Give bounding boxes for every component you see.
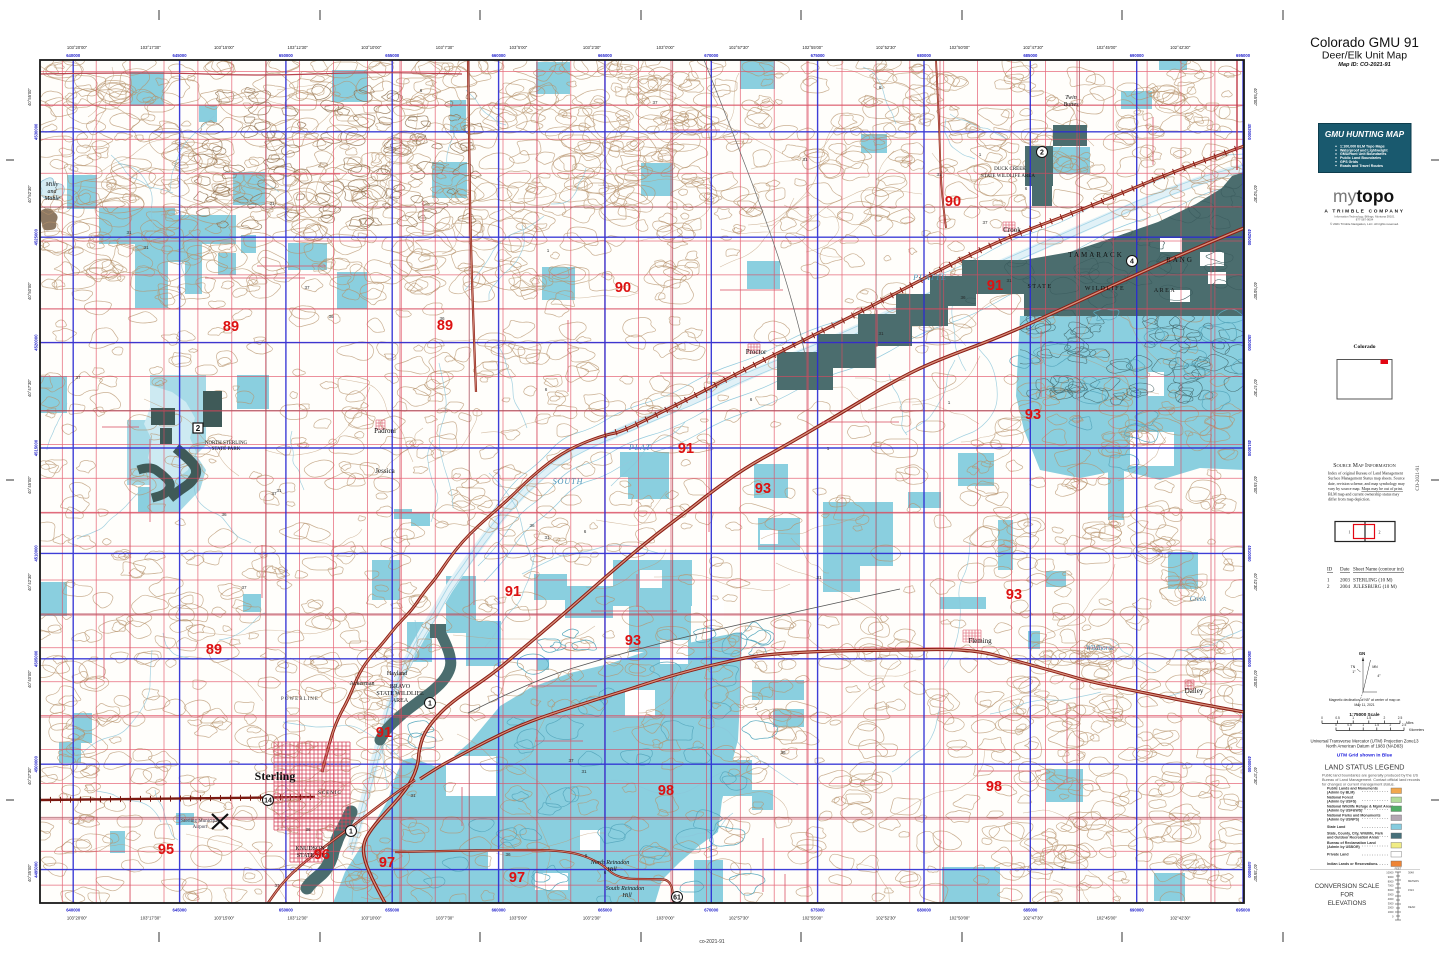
svg-text:CO-2021-91: CO-2021-91 [1416,465,1421,491]
svg-text:Map ID: CO-2021-91: Map ID: CO-2021-91 [1338,62,1391,68]
svg-text:650000: 650000 [279,53,294,58]
svg-text:103°15'00": 103°15'00" [214,916,235,921]
svg-text:2000: 2000 [1388,906,1394,910]
svg-text:102°55'00": 102°55'00" [802,916,823,921]
svg-text:31: 31 [269,201,275,206]
svg-text:103°12'30": 103°12'30" [288,45,309,50]
svg-text:1: 1 [755,706,758,711]
svg-text:SCENIC: SCENIC [318,791,342,796]
svg-text:103°5'00": 103°5'00" [509,45,527,50]
svg-text:4000: 4000 [1388,897,1394,901]
svg-text:4500000: 4500000 [1247,756,1252,773]
svg-text:NORTH STERLING: NORTH STERLING [205,441,248,446]
svg-text:103°20'00": 103°20'00" [67,916,88,921]
svg-text:Colorado GMU 91: Colorado GMU 91 [1310,35,1419,50]
svg-text:680000: 680000 [917,53,932,58]
svg-text:91: 91 [987,278,1003,294]
svg-text:10000: 10000 [1386,871,1394,875]
svg-text:40°45'00": 40°45'00" [1253,476,1258,494]
svg-text:685000: 685000 [1023,53,1038,58]
svg-text:(Admin by USF&WS): (Admin by USF&WS) [1327,809,1363,813]
svg-text:93: 93 [625,633,641,649]
svg-text:37: 37 [241,585,247,590]
svg-text:1: 1 [547,248,550,253]
svg-text:102°45'00": 102°45'00" [1097,45,1118,50]
svg-text:differ from map depiction.: differ from map depiction. [1328,497,1370,502]
svg-text:103°12'30": 103°12'30" [288,916,309,921]
svg-text:102°52'30": 102°52'30" [876,45,897,50]
svg-text:for changes or current managem: for changes or current management status… [1322,782,1395,786]
svg-text:6000: 6000 [1388,888,1394,892]
svg-text:1: 1 [1352,716,1354,720]
svg-text:91: 91 [376,725,392,741]
svg-text:31: 31 [802,157,808,162]
svg-text:Jessica: Jessica [375,467,395,475]
svg-text:660000: 660000 [492,908,507,913]
svg-text:103°17'30": 103°17'30" [140,916,161,921]
svg-text:Fleming: Fleming [968,637,992,645]
svg-text:State Land: State Land [1327,825,1345,829]
svg-text:40°37'30": 40°37'30" [27,767,32,785]
svg-text:Indian Lands or Reservations: Indian Lands or Reservations [1327,862,1377,866]
svg-text:Sterling: Sterling [255,769,296,783]
svg-text:Hill: Hill [621,893,632,899]
svg-text:4510000: 4510000 [34,545,39,562]
svg-text:RANG: RANG [1166,256,1194,264]
svg-text:4525000: 4525000 [34,228,39,245]
svg-text:2: 2 [196,424,201,433]
svg-text:GN: GN [1359,651,1365,656]
svg-text:Roads and Travel Routes: Roads and Travel Routes [1340,164,1383,168]
svg-text:665000: 665000 [598,53,613,58]
svg-text:1: 1 [1349,530,1351,535]
svg-text:102°42'30": 102°42'30" [1170,916,1191,921]
svg-text:36: 36 [305,827,311,832]
svg-text:Magnetic declination of N5° at: Magnetic declination of N5° at center of… [1329,698,1401,702]
svg-text:102°45'00": 102°45'00" [1097,916,1118,921]
svg-text:6: 6 [584,529,587,534]
svg-text:3048: 3048 [1408,871,1414,875]
svg-text:103°7'30": 103°7'30" [436,916,454,921]
svg-text:37: 37 [304,285,310,290]
svg-text:31: 31 [126,230,132,235]
svg-text:3000: 3000 [1388,901,1394,905]
svg-text:93: 93 [1025,407,1041,423]
svg-text:40°40'00": 40°40'00" [1253,670,1258,688]
svg-text:MN: MN [1372,665,1378,669]
svg-text:6: 6 [585,853,588,858]
svg-text:93: 93 [1006,587,1022,603]
svg-text:2: 2 [1040,150,1044,157]
svg-text:31: 31 [816,575,822,580]
svg-text:AREA: AREA [1154,288,1176,294]
svg-text:103°5'00": 103°5'00" [509,916,527,921]
svg-text:103°10'00": 103°10'00" [361,916,382,921]
svg-text:STATE WILDLIFE: STATE WILDLIFE [376,691,424,697]
svg-text:103°0'00": 103°0'00" [656,45,674,50]
svg-text:Ackerman: Ackerman [350,681,375,687]
svg-text:102°42'30": 102°42'30" [1170,45,1191,50]
svg-text:LAND STATUS LEGEND: LAND STATUS LEGEND [1324,763,1404,772]
svg-text:8000: 8000 [1388,879,1394,883]
svg-text:97: 97 [379,855,395,871]
svg-text:4505000: 4505000 [1247,651,1252,668]
svg-text:102°50'00": 102°50'00" [949,916,970,921]
svg-text:READ: READ [1408,905,1415,909]
svg-text:0.5: 0.5 [1347,723,1352,727]
svg-text:4505000: 4505000 [34,650,39,667]
svg-text:640000: 640000 [66,908,81,913]
svg-text:31: 31 [878,331,884,336]
svg-text:Twin: Twin [1065,95,1077,101]
svg-text:40°37'30": 40°37'30" [1253,767,1258,785]
svg-text:4520000: 4520000 [34,334,39,351]
svg-text:670000: 670000 [704,908,719,913]
svg-text:650000: 650000 [279,908,294,913]
svg-text:Sterling Municipal: Sterling Municipal [181,819,219,824]
svg-text:102°52'30": 102°52'30" [876,916,897,921]
svg-text:640000: 640000 [66,53,81,58]
svg-text:Public land boundaries are gen: Public land boundaries are generally pro… [1322,774,1419,778]
svg-text:1000: 1000 [1388,910,1394,914]
svg-text:36: 36 [529,523,535,528]
svg-text:SOUTH: SOUTH [553,477,584,486]
svg-text:4530000: 4530000 [1247,124,1252,141]
svg-text:103°20'00": 103°20'00" [67,45,88,50]
svg-text:South Reinadon: South Reinadon [606,886,644,892]
svg-text:1.5: 1.5 [1367,716,1372,720]
svg-text:31: 31 [544,535,550,540]
svg-text:2: 2 [1379,530,1381,535]
svg-text:4500000: 4500000 [34,755,39,772]
svg-text:PLAT: PLAT [628,443,651,452]
svg-text:North American Datum of 1983 (: North American Datum of 1983 (NAD83) [1326,744,1403,749]
svg-text:36: 36 [780,750,786,755]
svg-text:670000: 670000 [704,53,719,58]
svg-text:4495000: 4495000 [34,861,39,878]
svg-text:STERLING (10 M): STERLING (10 M) [1353,579,1393,584]
svg-text:Creek: Creek [1190,595,1207,603]
svg-text:Buttes: Buttes [1064,102,1080,108]
svg-text:STATE: STATE [1027,284,1052,290]
svg-text:40°42'30": 40°42'30" [1253,573,1258,591]
svg-text:7000: 7000 [1388,884,1394,888]
svg-text:37: 37 [568,758,574,763]
svg-text:40°47'30": 40°47'30" [1253,379,1258,397]
svg-text:103°7'30": 103°7'30" [436,45,454,50]
svg-text:Miles: Miles [1406,721,1414,725]
svg-text:37: 37 [75,375,81,380]
svg-text:96: 96 [314,847,330,863]
svg-text:103°17'30": 103°17'30" [140,45,161,50]
svg-text:102°57'30": 102°57'30" [729,916,750,921]
svg-text:Mable: Mable [43,196,60,202]
svg-text:© 2021 Trimble Navigation, LLC: © 2021 Trimble Navigation, LLC. All righ… [1330,222,1399,226]
svg-text:97: 97 [509,870,525,886]
svg-text:36: 36 [960,295,966,300]
svg-text:665000: 665000 [598,908,613,913]
svg-text:co-2021-91: co-2021-91 [699,939,725,945]
svg-text:North Reinadon: North Reinadon [590,860,630,866]
svg-text:40°50'00": 40°50'00" [1253,282,1258,300]
svg-text:POWERLINE: POWERLINE [281,697,319,702]
svg-text:655000: 655000 [385,908,400,913]
svg-text:645000: 645000 [173,908,188,913]
svg-text:685000: 685000 [1023,908,1038,913]
svg-text:103°0'00": 103°0'00" [656,916,674,921]
svg-text:103°15'00": 103°15'00" [214,45,235,50]
svg-text:TN: TN [1351,665,1356,669]
svg-text:89: 89 [206,642,222,658]
svg-text:FEET: FEET [1395,867,1402,871]
svg-text:660000: 660000 [492,53,507,58]
svg-text:6: 6 [420,88,423,93]
svg-text:36: 36 [221,512,227,517]
svg-text:90: 90 [615,280,631,296]
svg-text:2004: 2004 [1340,585,1351,590]
svg-text:2.5: 2.5 [1402,723,1407,727]
svg-text:METERS: METERS [1408,879,1419,883]
svg-text:TAMARACK: TAMARACK [1068,251,1124,259]
svg-text:and Outdoor Recreation Areas: and Outdoor Recreation Areas [1327,836,1379,840]
svg-text:40°55'00": 40°55'00" [1253,88,1258,106]
svg-text:2: 2 [1390,723,1392,727]
svg-text:9000: 9000 [1388,875,1394,879]
svg-text:2003: 2003 [1340,579,1351,584]
svg-text:(Admin by USFS): (Admin by USFS) [1327,800,1357,804]
svg-text:4515000: 4515000 [1247,440,1252,457]
svg-text:Dailey: Dailey [1185,687,1204,695]
svg-text:mytopo: mytopo [1333,186,1394,206]
svg-text:36: 36 [505,852,511,857]
svg-text:AREA: AREA [392,698,409,704]
svg-text:40°40'00": 40°40'00" [27,670,32,688]
svg-text:Sheet Name (contour int): Sheet Name (contour int) [1353,568,1404,573]
svg-text:4515000: 4515000 [34,439,39,456]
svg-text:1: 1 [827,446,830,451]
svg-text:695000: 695000 [1236,908,1251,913]
svg-text:1.5: 1.5 [1375,723,1380,727]
svg-text:FOR: FOR [1340,892,1354,899]
svg-text:4495000: 4495000 [1247,861,1252,878]
svg-text:102°57'30": 102°57'30" [729,45,750,50]
svg-text:Deer/Elk Unit Map: Deer/Elk Unit Map [1322,50,1407,62]
svg-text:Hayland: Hayland [387,671,407,677]
svg-text:STATE WILDLIFE AREA: STATE WILDLIFE AREA [981,174,1035,179]
svg-text:40°42'30": 40°42'30" [27,573,32,591]
svg-text:690000: 690000 [1130,908,1145,913]
svg-text:Kilometers: Kilometers [1409,728,1424,732]
svg-text:40°35'00": 40°35'00" [1253,864,1258,882]
svg-text:31: 31 [581,769,587,774]
svg-text:40°52'30": 40°52'30" [1253,185,1258,203]
svg-text:Date: Date [1340,568,1350,573]
svg-text:89: 89 [223,319,239,335]
svg-text:37: 37 [1060,866,1066,871]
svg-text:GMU HUNTING MAP: GMU HUNTING MAP [1325,130,1405,139]
svg-text:Bureau of Land Management. Con: Bureau of Land Management. Contact offic… [1322,778,1420,782]
svg-text:Wildhorse: Wildhorse [1086,644,1114,652]
svg-text:6: 6 [545,387,548,392]
svg-text:103°2'30": 103°2'30" [583,45,601,50]
svg-text:STATE PARK: STATE PARK [212,447,241,452]
svg-text:4520000: 4520000 [1247,334,1252,351]
svg-text:98: 98 [658,783,674,799]
svg-text:37: 37 [982,220,988,225]
svg-text:CONVERSION SCALE: CONVERSION SCALE [1315,883,1380,890]
svg-text:and: and [48,189,58,195]
svg-text:98: 98 [986,779,1002,795]
svg-text:40°50'00": 40°50'00" [27,282,32,300]
svg-text:90: 90 [945,194,961,210]
svg-text:31: 31 [936,172,942,177]
svg-text:4525000: 4525000 [1247,229,1252,246]
svg-text:ELEVATIONS: ELEVATIONS [1328,900,1367,907]
svg-text:Private Land: Private Land [1327,853,1349,857]
svg-text:Crook: Crook [1003,226,1021,234]
svg-text:37: 37 [274,883,280,888]
svg-text:102°47'30": 102°47'30" [1023,916,1044,921]
svg-text:Milly: Milly [45,182,59,188]
svg-text:102°55'00": 102°55'00" [802,45,823,50]
svg-text:31: 31 [143,245,149,250]
svg-text:36: 36 [328,314,334,319]
svg-text:1: 1 [1362,723,1364,727]
svg-text:2: 2 [1384,716,1386,720]
svg-text:(Admin by BLM): (Admin by BLM) [1327,791,1355,795]
svg-text:877-587-9004: 877-587-9004 [1356,218,1374,222]
svg-text:BRAVO: BRAVO [390,684,411,690]
svg-text:89: 89 [437,318,453,334]
svg-text:6: 6 [1025,186,1028,191]
svg-text:4: 4 [1130,259,1134,266]
svg-text:655000: 655000 [385,53,400,58]
svg-text:4510000: 4510000 [1247,545,1252,562]
svg-text:1: 1 [428,701,432,708]
svg-text:95: 95 [158,842,174,858]
svg-text:40°55'00": 40°55'00" [27,88,32,106]
svg-text:103°10'00": 103°10'00" [361,45,382,50]
svg-text:31: 31 [410,793,416,798]
svg-text:37: 37 [652,100,658,105]
svg-text:1524: 1524 [1408,888,1414,892]
svg-text:91: 91 [678,441,694,457]
svg-text:(Admin by USNPS): (Admin by USNPS) [1327,818,1360,822]
svg-text:31: 31 [276,488,282,493]
svg-text:40°45'00": 40°45'00" [27,476,32,494]
svg-text:40°35'00": 40°35'00" [27,864,32,882]
svg-text:Padroni: Padroni [374,427,396,435]
svg-text:675000: 675000 [811,908,826,913]
svg-text:6: 6 [604,870,607,875]
svg-text:690000: 690000 [1130,53,1145,58]
svg-text:DUCK CREEK: DUCK CREEK [994,167,1026,172]
svg-text:6: 6 [879,85,882,90]
svg-text:ID: ID [1327,568,1333,573]
svg-text:93: 93 [755,481,771,497]
svg-text:103°2'30": 103°2'30" [583,916,601,921]
svg-text:645000: 645000 [173,53,188,58]
svg-text:40°52'30": 40°52'30" [27,185,32,203]
svg-text:680000: 680000 [917,908,932,913]
svg-text:1: 1 [349,829,353,836]
svg-text:1: 1 [948,400,951,405]
svg-text:Proctor: Proctor [746,348,767,356]
svg-text:0: 0 [1321,716,1323,720]
svg-text:2.5: 2.5 [1398,716,1403,720]
svg-text:102°47'30": 102°47'30" [1023,45,1044,50]
svg-text:1: 1 [979,152,982,157]
svg-text:0.5: 0.5 [1335,716,1340,720]
svg-text:14: 14 [264,798,272,805]
svg-text:(Admin by USBOR): (Admin by USBOR) [1327,845,1361,849]
svg-text:695000: 695000 [1236,53,1251,58]
svg-text:PLATTE: PLATTE [912,273,947,282]
svg-text:6: 6 [750,397,753,402]
svg-text:JULESBURG (10 M): JULESBURG (10 M) [1353,585,1397,590]
svg-text:WILDLIFE: WILDLIFE [1085,286,1125,292]
svg-text:40°47'30": 40°47'30" [27,379,32,397]
svg-text:91: 91 [505,584,521,600]
svg-text:102°50'00": 102°50'00" [949,45,970,50]
svg-text:675000: 675000 [811,53,826,58]
svg-text:61: 61 [673,895,681,902]
svg-text:0: 0 [1335,723,1337,727]
svg-text:May 11, 2021: May 11, 2021 [1354,703,1374,707]
svg-text:Airport: Airport [193,825,208,830]
svg-text:Hill: Hill [606,867,617,873]
svg-text:5000: 5000 [1388,893,1394,897]
svg-text:UTM Grid shown in Blue: UTM Grid shown in Blue [1337,753,1393,759]
svg-text:Colorado: Colorado [1354,344,1376,350]
svg-text:31: 31 [1006,278,1012,283]
svg-text:4530000: 4530000 [34,123,39,140]
